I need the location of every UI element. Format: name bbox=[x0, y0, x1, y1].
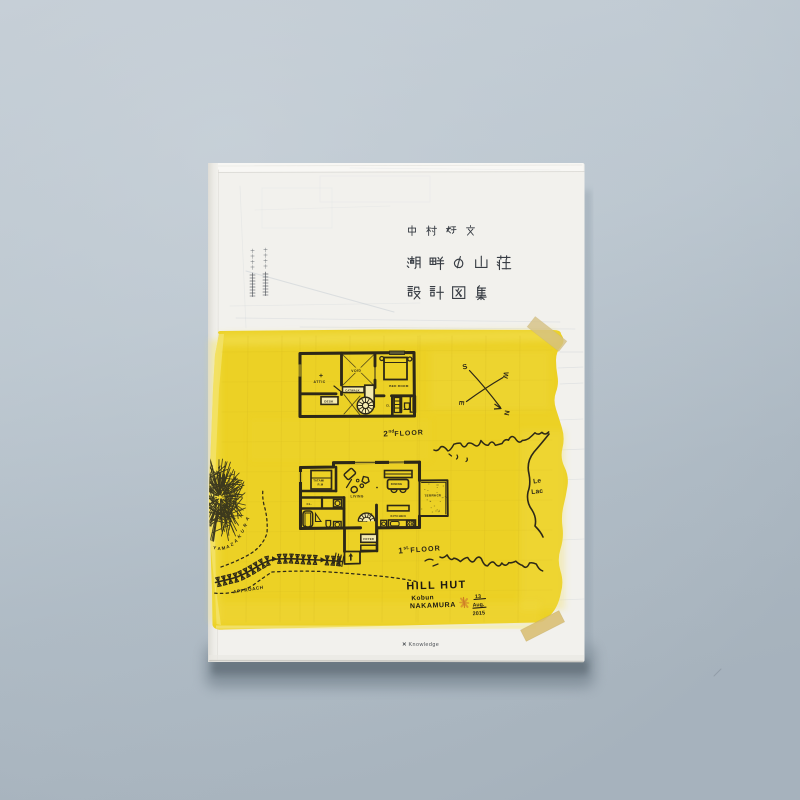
svg-text:CL: CL bbox=[386, 404, 390, 408]
svg-text:Lac: Lac bbox=[531, 488, 544, 496]
svg-text:✕: ✕ bbox=[402, 641, 407, 648]
svg-text:BED ROOM: BED ROOM bbox=[389, 384, 409, 388]
svg-text:ATTIC: ATTIC bbox=[314, 380, 326, 384]
svg-text:TERRACE: TERRACE bbox=[424, 493, 441, 498]
svg-text:CL.: CL. bbox=[307, 502, 312, 506]
svg-text:CATWALK: CATWALK bbox=[345, 388, 360, 392]
svg-text:Kobun: Kobun bbox=[411, 594, 434, 602]
svg-text:HILL HUT: HILL HUT bbox=[406, 579, 466, 593]
svg-text:VOID: VOID bbox=[351, 369, 361, 373]
svg-text:KITCHEN: KITCHEN bbox=[391, 514, 406, 518]
svg-text:st.: st. bbox=[403, 545, 410, 551]
svg-text:DINING: DINING bbox=[391, 482, 403, 486]
svg-text:Knowledge: Knowledge bbox=[409, 642, 440, 648]
svg-text:LIVING: LIVING bbox=[351, 495, 364, 499]
svg-text:Le: Le bbox=[533, 477, 542, 485]
svg-text:2015: 2015 bbox=[473, 610, 486, 617]
svg-text:DESK: DESK bbox=[324, 399, 334, 403]
svg-text:R.M: R.M bbox=[318, 483, 324, 487]
svg-text:FOYER: FOYER bbox=[363, 537, 374, 541]
